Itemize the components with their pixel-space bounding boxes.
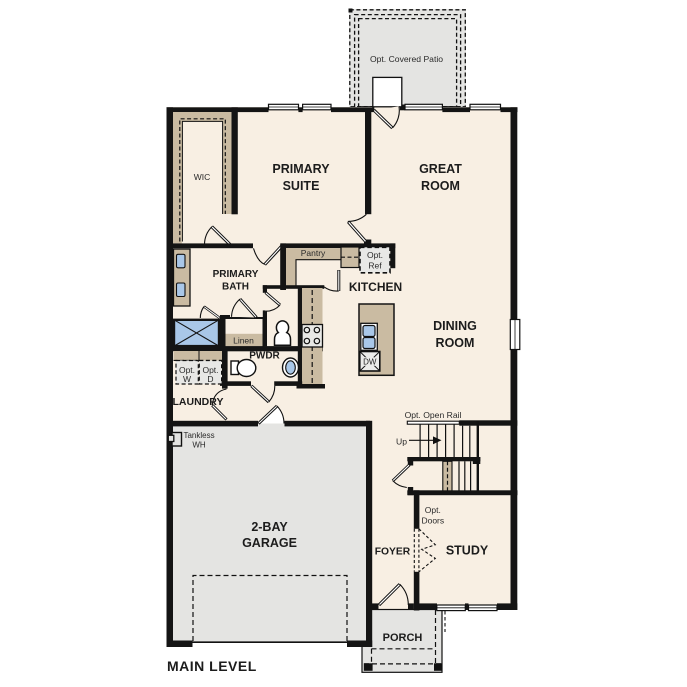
svg-text:Linen: Linen xyxy=(233,335,254,345)
svg-text:SUITE: SUITE xyxy=(283,179,320,193)
svg-text:Up: Up xyxy=(396,436,407,446)
svg-text:Ref: Ref xyxy=(368,260,382,270)
svg-text:Opt. Covered Patio: Opt. Covered Patio xyxy=(370,54,443,64)
svg-text:ROOM: ROOM xyxy=(436,336,475,350)
svg-text:PRIMARY: PRIMARY xyxy=(213,269,259,280)
svg-text:Doors: Doors xyxy=(421,516,444,526)
svg-text:DW: DW xyxy=(363,358,377,367)
svg-text:ROOM: ROOM xyxy=(421,179,460,193)
svg-text:PORCH: PORCH xyxy=(383,632,423,644)
svg-text:WIC: WIC xyxy=(194,172,211,182)
svg-text:WH: WH xyxy=(192,440,206,449)
svg-text:Opt.: Opt. xyxy=(425,505,441,515)
svg-text:Tankless: Tankless xyxy=(183,431,214,440)
svg-text:Pantry: Pantry xyxy=(301,248,326,258)
svg-text:DINING: DINING xyxy=(433,319,477,333)
svg-text:D: D xyxy=(207,374,213,384)
svg-text:KITCHEN: KITCHEN xyxy=(349,280,402,294)
svg-text:PWDR: PWDR xyxy=(249,351,280,362)
svg-text:MAIN LEVEL: MAIN LEVEL xyxy=(167,658,257,674)
svg-text:GARAGE: GARAGE xyxy=(242,536,297,550)
svg-text:Opt. Open Rail: Opt. Open Rail xyxy=(405,410,462,420)
svg-text:FOYER: FOYER xyxy=(375,547,411,558)
svg-text:GREAT: GREAT xyxy=(419,162,462,176)
svg-text:W: W xyxy=(183,374,191,384)
svg-text:Opt.: Opt. xyxy=(367,250,383,260)
svg-text:BATH: BATH xyxy=(222,282,249,293)
svg-text:2-BAY: 2-BAY xyxy=(251,520,288,534)
svg-text:LAUNDRY: LAUNDRY xyxy=(173,396,224,408)
svg-text:STUDY: STUDY xyxy=(446,544,489,558)
svg-text:PRIMARY: PRIMARY xyxy=(272,162,330,176)
